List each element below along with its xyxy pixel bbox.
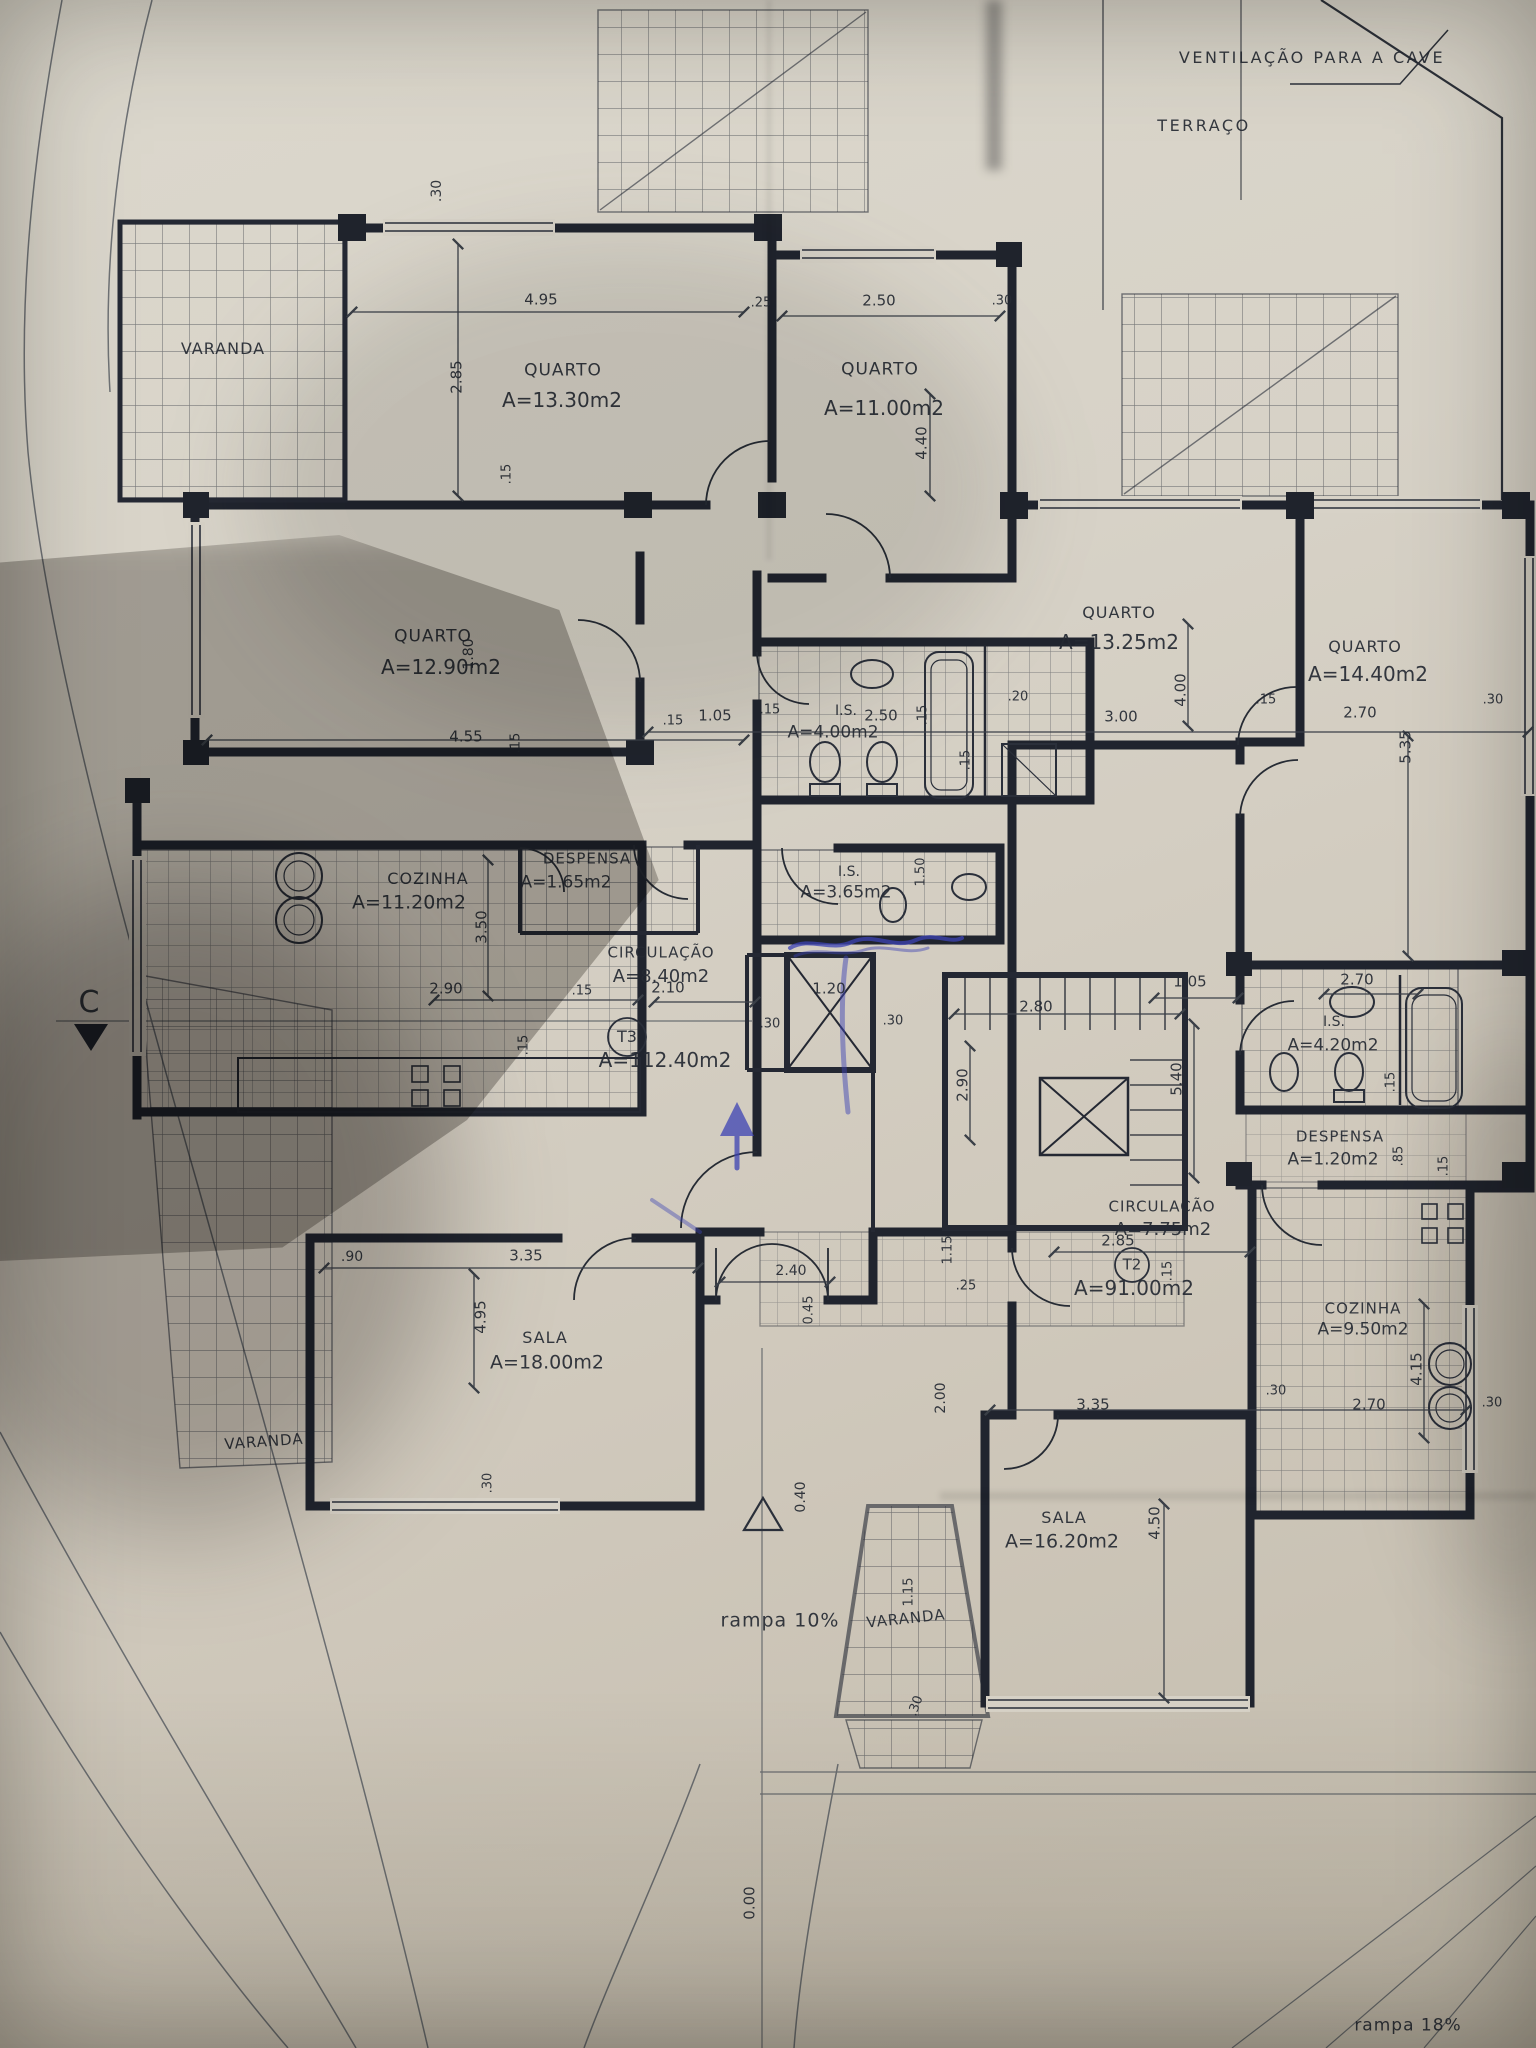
dimension-label: 2.70 [1352, 1398, 1385, 1413]
apartment-t3-area: A=112.40m2 [599, 1050, 732, 1070]
dimension-label: 2.85 [450, 360, 465, 393]
dimension-label: .15 [1162, 1261, 1175, 1282]
section-marker-c: C [79, 988, 100, 1018]
dimension-label: 1.20 [812, 982, 845, 997]
dimension-label: 3.35 [1076, 1398, 1109, 1413]
dimension-label: 2.70 [1340, 973, 1373, 988]
dimension-label: .15 [1256, 694, 1277, 707]
dimension-label: .30 [906, 1694, 925, 1718]
dimension-label: .15 [760, 704, 781, 717]
dimension-label: 1.80 [462, 638, 476, 669]
dimension-label: .15 [663, 715, 684, 728]
dimension-label: 2.90 [429, 982, 462, 997]
room-is-420-name: I.S. [1323, 1015, 1345, 1029]
dimension-label: .30 [430, 180, 444, 202]
level-0-40: 0.40 [794, 1481, 808, 1512]
room-quarto-1325-name: QUARTO [1082, 605, 1156, 621]
dimension-label: 1.05 [698, 709, 731, 724]
dimension-label: .15 [510, 733, 523, 754]
dimension-label: .30 [1483, 694, 1504, 707]
dimension-label: 2.00 [934, 1382, 948, 1413]
dimension-label: 2.80 [1019, 1000, 1052, 1015]
dimension-label: 5.35 [1399, 730, 1414, 763]
room-quarto-1325-area: A=13.25m2 [1059, 632, 1179, 652]
room-sala-t3-name: SALA [522, 1330, 568, 1346]
dimension-label: .30 [482, 1473, 495, 1494]
dimension-label: .30 [883, 1015, 904, 1028]
room-despensa-t3-area: A=1.65m2 [520, 875, 611, 892]
apartment-t2-tag: T2 [1123, 1258, 1142, 1273]
plan-text-layer: VENTILAÇÃO PARA A CAVETERRAÇOCrampa 10%r… [0, 0, 1536, 2048]
dimension-label: .20 [1008, 691, 1029, 704]
note-rampa-10: rampa 10% [721, 1612, 840, 1631]
apartment-t2-area: A=91.00m2 [1074, 1278, 1194, 1298]
dimension-label: 2.50 [864, 709, 897, 724]
floorplan-photo: VENTILAÇÃO PARA A CAVETERRAÇOCrampa 10%r… [0, 0, 1536, 2048]
room-varanda-center: VARANDA [866, 1607, 947, 1630]
note-ventilacao-cave: VENTILAÇÃO PARA A CAVE [1179, 50, 1445, 66]
room-varanda-bottomleft: VARANDA [224, 1432, 304, 1453]
dimension-label: 2.85 [1101, 1234, 1134, 1249]
note-terraco: TERRAÇO [1157, 118, 1250, 134]
level-0-00: 0.00 [743, 1886, 758, 1919]
room-is-365-name: I.S. [838, 865, 860, 879]
dimension-label: 2.50 [862, 294, 895, 309]
dimension-label: 4.55 [449, 730, 482, 745]
dimension-label: 4.15 [1410, 1352, 1425, 1385]
dimension-label: .30 [1482, 1397, 1503, 1410]
dimension-label: .15 [917, 705, 930, 726]
room-cozinha-t3-area: A=11.20m2 [352, 894, 466, 913]
room-is-365-area: A=3.65m2 [800, 885, 891, 902]
room-is-400-area: A=4.00m2 [787, 725, 878, 742]
apartment-t3-tag: T3 [617, 1029, 637, 1045]
room-quarto-1330-name: QUARTO [524, 363, 602, 380]
note-rampa-18: rampa 18% [1354, 2018, 1461, 2035]
room-cozinha-t2-area: A=9.50m2 [1317, 1322, 1408, 1339]
room-circulacao-t3-name: CIRCULAÇÃO [607, 946, 714, 961]
room-sala-t2-area: A=16.20m2 [1005, 1533, 1119, 1552]
room-despensa-t2-name: DESPENSA [1296, 1130, 1384, 1145]
dimension-label: 5.40 [1170, 1062, 1185, 1095]
dimension-label: 3.35 [509, 1249, 542, 1264]
room-sala-t2-name: SALA [1041, 1510, 1087, 1526]
room-quarto-1440-name: QUARTO [1328, 639, 1402, 655]
dimension-label: 4.50 [1148, 1506, 1163, 1539]
dimension-label: 2.40 [775, 1264, 806, 1278]
dimension-label: 0.45 [803, 1296, 816, 1325]
dimension-label: 3.50 [475, 910, 490, 943]
dimension-label: .15 [1438, 1156, 1451, 1177]
dimension-label: 3.00 [1104, 710, 1137, 725]
dimension-label: .25 [956, 1280, 977, 1293]
dimension-label: .15 [501, 464, 514, 485]
dimension-label: 1.50 [915, 858, 928, 887]
dimension-label: .30 [992, 295, 1013, 308]
room-is-400-name: I.S. [835, 704, 857, 718]
dimension-label: .15 [960, 750, 973, 771]
room-despensa-t3-name: DESPENSA [543, 852, 631, 867]
dimension-label: 1.15 [903, 1578, 916, 1607]
dimension-label: .90 [341, 1250, 363, 1264]
dimension-label: 2.90 [956, 1068, 971, 1101]
dimension-label: .15 [1385, 1072, 1398, 1093]
dimension-label: .30 [1266, 1385, 1287, 1398]
room-quarto-1100-area: A=11.00m2 [824, 398, 944, 418]
dimension-label: .85 [1393, 1146, 1406, 1167]
room-quarto-1440-area: A=14.40m2 [1308, 664, 1428, 684]
room-quarto-1290-area: A=12.90m2 [381, 657, 501, 677]
room-despensa-t2-area: A=1.20m2 [1287, 1152, 1378, 1169]
room-cozinha-t2-name: COZINHA [1325, 1302, 1402, 1317]
room-varanda-topleft: VARANDA [181, 341, 265, 357]
dimension-label: 1.05 [1173, 975, 1206, 990]
room-quarto-1100-name: QUARTO [841, 362, 919, 379]
dimension-label: 2.10 [651, 981, 684, 996]
dimension-label: .15 [518, 1035, 531, 1056]
dimension-label: .15 [572, 985, 593, 998]
dimension-label: 4.95 [474, 1300, 489, 1333]
room-circulacao-t2-name: CIRCULAÇÃO [1108, 1200, 1215, 1215]
room-is-420-area: A=4.20m2 [1287, 1038, 1378, 1055]
room-quarto-1330-area: A=13.30m2 [502, 390, 622, 410]
dimension-label: 4.40 [915, 426, 930, 459]
dimension-label: 4.00 [1174, 673, 1189, 706]
room-sala-t3-area: A=18.00m2 [490, 1354, 604, 1373]
dimension-label: 2.70 [1343, 706, 1376, 721]
dimension-label: .30 [760, 1018, 781, 1031]
dimension-label: 1.15 [942, 1236, 955, 1265]
dimension-label: 4.95 [524, 293, 557, 308]
dimension-label: .25 [751, 297, 772, 310]
room-cozinha-t3-name: COZINHA [387, 871, 468, 887]
